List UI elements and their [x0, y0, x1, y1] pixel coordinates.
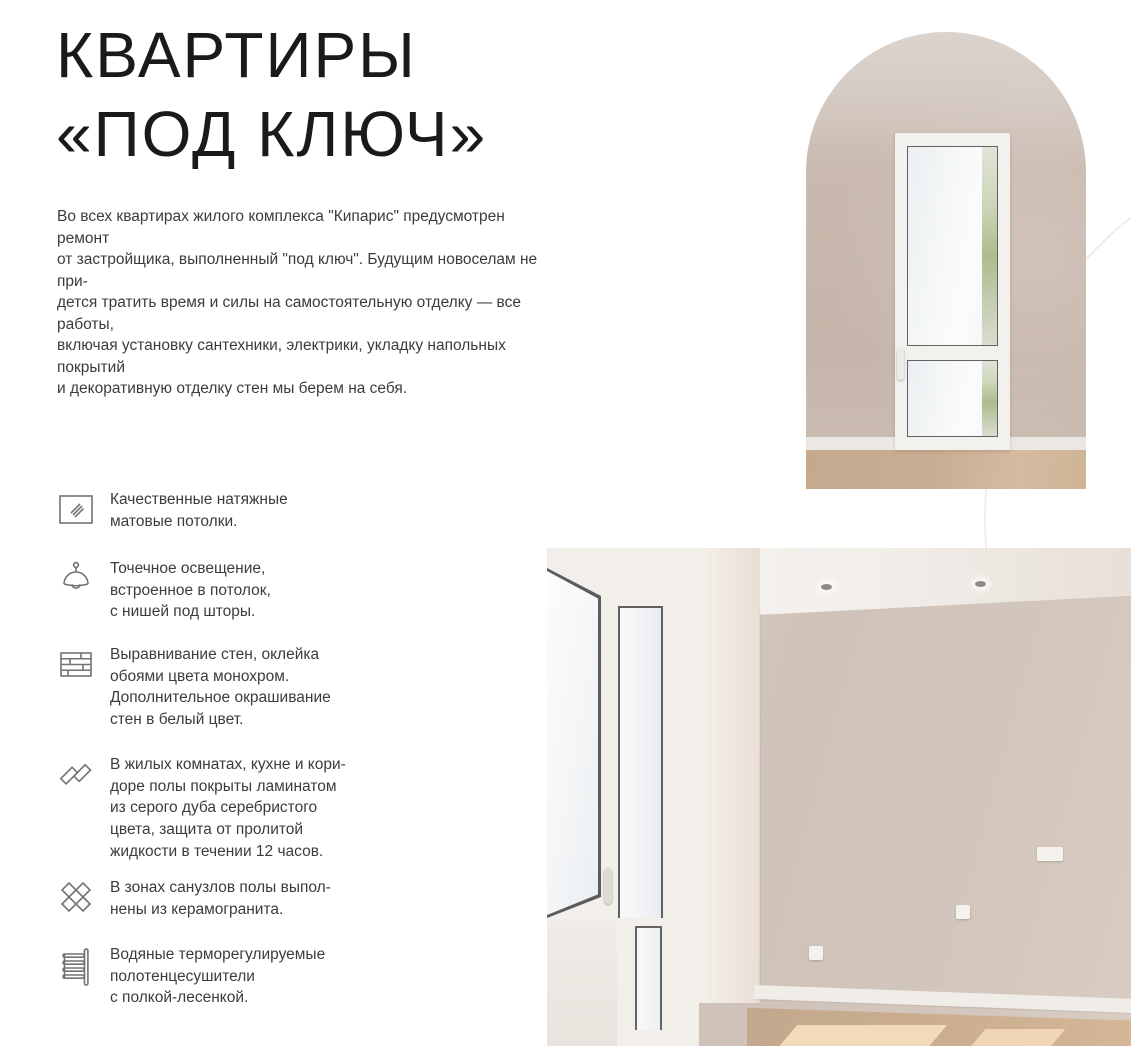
feature-text: В зонах санузлов полы выпол- нены из кер… [110, 877, 382, 920]
arch-photo [806, 32, 1086, 489]
intro-paragraph: Во всех квартирах жилого комплекса "Кипа… [57, 206, 557, 400]
door-glass-top [907, 146, 998, 346]
feature-item-walls: Выравнивание стен, оклейка обоями цвета … [56, 644, 382, 731]
door-handle [897, 347, 904, 380]
laminate-planks-icon [56, 754, 96, 794]
feature-item-laminate: В жилых комнатах, кухне и кори- доре пол… [56, 754, 382, 863]
feature-item-lighting: Точечное освещение, встроенное в потолок… [56, 558, 382, 623]
ceramic-tiles-icon [56, 877, 96, 917]
title-line-1: КВАРТИРЫ [56, 16, 487, 95]
sunlight-patch [777, 1025, 947, 1046]
power-outlet [809, 946, 823, 960]
window-glass [547, 571, 598, 915]
window-parapet [547, 920, 617, 1046]
window-reveal [697, 548, 760, 1003]
window-view-greenery [982, 147, 997, 345]
recessed-light [821, 584, 832, 590]
wood-floor [806, 450, 1086, 489]
door-handle [604, 868, 612, 904]
pendant-lamp-icon [56, 558, 96, 598]
feature-text: Выравнивание стен, оклейка обоями цвета … [110, 644, 382, 731]
balcony-door-glass [618, 606, 663, 918]
door-glass-bottom [907, 360, 998, 437]
baseboard [753, 985, 1131, 1013]
power-outlet [956, 905, 970, 919]
wall-corner-line [759, 610, 761, 1002]
power-outlet [1037, 847, 1063, 861]
feature-item-tiles: В зонах санузлов полы выпол- нены из кер… [56, 877, 382, 920]
recessed-light [975, 581, 986, 587]
feature-item-towel-rail: Водяные терморегулируемые полотенцесушит… [56, 944, 382, 1009]
balcony-door [895, 133, 1010, 450]
feature-text: Качественные натяжные матовые потолки. [110, 489, 382, 532]
feature-item-ceilings: Качественные натяжные матовые потолки. [56, 489, 382, 532]
stretch-ceiling-icon [56, 489, 96, 529]
title-line-2: «ПОД КЛЮЧ» [56, 95, 487, 174]
balcony-door-glass-lower [635, 926, 662, 1030]
brochure-page: КВАРТИРЫ «ПОД КЛЮЧ» Во всех квартирах жи… [0, 0, 1131, 1046]
room-photo [547, 548, 1131, 1046]
brick-wall-icon [56, 644, 96, 684]
feature-text: Точечное освещение, встроенное в потолок… [110, 558, 382, 623]
feature-text: Водяные терморегулируемые полотенцесушит… [110, 944, 382, 1009]
window-view-greenery [982, 361, 997, 436]
window-frame [547, 548, 699, 1046]
page-title: КВАРТИРЫ «ПОД КЛЮЧ» [56, 16, 487, 174]
feature-text: В жилых комнатах, кухне и кори- доре пол… [110, 754, 382, 863]
sunlight-patch [969, 1029, 1066, 1046]
towel-rail-icon [56, 944, 96, 990]
